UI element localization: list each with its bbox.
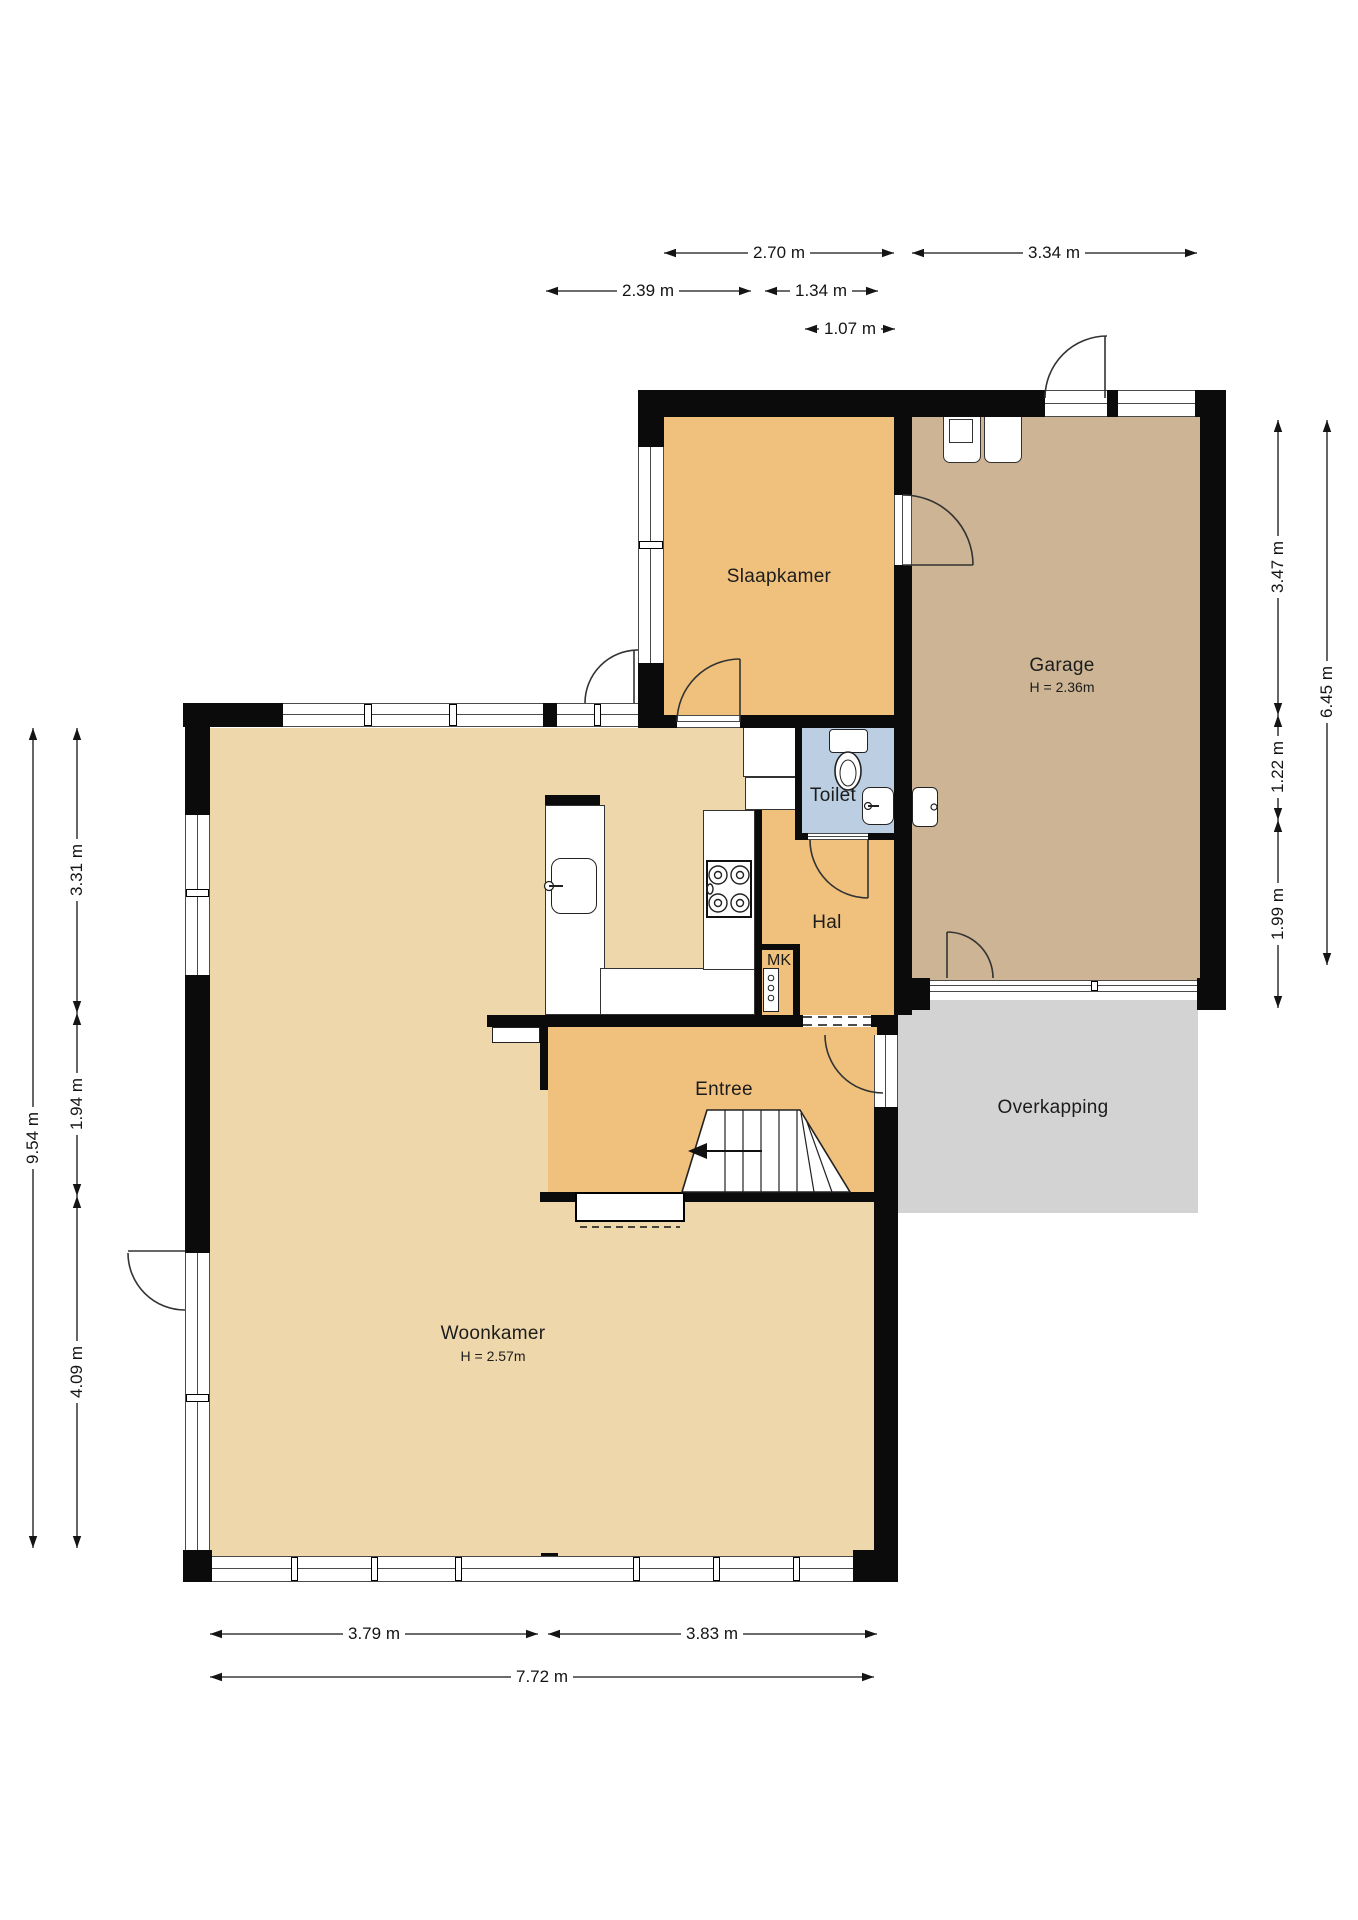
door-garage-south-threshold bbox=[947, 980, 993, 992]
dim-label-left: 9.54 m bbox=[23, 1107, 43, 1169]
wall-segment bbox=[638, 715, 677, 728]
window-mullion bbox=[1091, 981, 1098, 991]
dim-label-left: 1.94 m bbox=[67, 1073, 87, 1135]
window-slaapkamer-west bbox=[638, 447, 664, 663]
wall-segment bbox=[760, 1015, 803, 1027]
dim-label-top: 3.34 m bbox=[1023, 243, 1085, 263]
wall-segment bbox=[183, 1550, 212, 1582]
window-mullion bbox=[364, 704, 372, 726]
window-garage-north bbox=[1118, 390, 1195, 417]
hal-entree-opening bbox=[803, 1015, 871, 1027]
window-mullion bbox=[371, 1557, 378, 1581]
wall-segment bbox=[638, 390, 664, 447]
window-west-lower bbox=[185, 1318, 210, 1550]
wall-segment bbox=[894, 978, 930, 1010]
dim-label-bottom: 3.83 m bbox=[681, 1624, 743, 1644]
dim-label-top: 1.07 m bbox=[819, 319, 881, 339]
slaapkamer-garage-door-threshold bbox=[894, 495, 912, 565]
kitchen-cabinet-lower bbox=[745, 777, 797, 810]
dim-label-top: 2.70 m bbox=[748, 243, 810, 263]
woonkamer-radiator bbox=[492, 1027, 540, 1043]
window-south-band bbox=[212, 1556, 853, 1582]
wall-segment bbox=[1197, 978, 1226, 1010]
wall-segment bbox=[185, 975, 210, 1253]
room-label-entree: Entree bbox=[695, 1079, 753, 1101]
door-garage-north-threshold bbox=[1045, 390, 1107, 417]
wall-segment bbox=[557, 1015, 760, 1027]
kitchen-cabinet-upper bbox=[743, 727, 797, 777]
window-mullion bbox=[455, 1557, 462, 1581]
entree-radiator-niche bbox=[575, 1192, 685, 1222]
dim-label-bottom: 3.79 m bbox=[343, 1624, 405, 1644]
room-label-slaapkamer: Slaapkamer bbox=[727, 566, 831, 588]
wall-segment bbox=[853, 1550, 898, 1582]
wall-segment bbox=[894, 390, 912, 495]
room-height-woonkamer: H = 2.57m bbox=[461, 1348, 526, 1364]
window-mullion bbox=[186, 1394, 209, 1402]
room-label-hal: Hal bbox=[812, 912, 841, 934]
dim-label-bottom: 7.72 m bbox=[511, 1667, 573, 1687]
garage-floor bbox=[912, 417, 1200, 980]
dim-label-top: 1.34 m bbox=[790, 281, 852, 301]
window-north-left bbox=[283, 703, 543, 727]
toilet-door-threshold bbox=[808, 833, 868, 840]
room-label-toilet: Toilet bbox=[810, 785, 856, 807]
room-label-overkapping: Overkapping bbox=[997, 1097, 1108, 1119]
dim-label-right: 1.22 m bbox=[1268, 736, 1288, 798]
wall-segment bbox=[1200, 390, 1226, 998]
garage-dryer bbox=[984, 411, 1022, 463]
wall-segment bbox=[894, 565, 912, 1015]
dim-label-right: 3.47 m bbox=[1268, 536, 1288, 598]
wall-segment bbox=[795, 728, 802, 840]
wall-segment bbox=[795, 833, 808, 840]
dim-label-right: 1.99 m bbox=[1268, 883, 1288, 945]
wall-segment bbox=[540, 1025, 548, 1090]
dim-label-right: 6.45 m bbox=[1317, 661, 1337, 723]
wall-segment bbox=[755, 810, 762, 1015]
wall-segment bbox=[543, 703, 557, 727]
wall-segment bbox=[638, 390, 1045, 417]
door-west-threshold bbox=[185, 1253, 210, 1318]
wall-segment bbox=[185, 703, 210, 815]
window-mullion bbox=[793, 1557, 800, 1581]
dim-label-left: 3.31 m bbox=[67, 839, 87, 901]
door-arc-garage-north bbox=[1045, 336, 1107, 398]
wall-segment bbox=[683, 1192, 898, 1202]
room-label-garage: Garage bbox=[1029, 655, 1094, 677]
window-mullion bbox=[713, 1557, 720, 1581]
dim-label-left: 4.09 m bbox=[67, 1341, 87, 1403]
room-label-woonkamer: Woonkamer bbox=[441, 1323, 546, 1345]
wall-segment bbox=[545, 795, 600, 805]
wall-segment bbox=[1107, 390, 1118, 417]
wall-segment bbox=[871, 1015, 898, 1027]
wall-segment bbox=[740, 715, 894, 728]
slaapkamer-door-threshold bbox=[677, 715, 740, 728]
wall-segment bbox=[540, 1192, 577, 1202]
front-door-threshold bbox=[874, 1035, 898, 1107]
wall-segment bbox=[874, 1107, 898, 1553]
door-arc-west-exterior bbox=[128, 1253, 185, 1310]
floor-plan: Slaapkamer Garage H = 2.36m Toilet Hal M… bbox=[0, 0, 1358, 1920]
dim-label-top: 2.39 m bbox=[617, 281, 679, 301]
kitchen-counter-south bbox=[600, 968, 755, 1015]
window-mullion bbox=[594, 704, 601, 726]
toilet-washbasin bbox=[862, 787, 894, 825]
entree-floor bbox=[548, 1027, 877, 1192]
window-mullion bbox=[291, 1557, 298, 1581]
meter-cabinet-unit bbox=[763, 968, 779, 1012]
garage-sink bbox=[912, 787, 938, 827]
room-label-meterkast: MK bbox=[767, 952, 791, 970]
window-mullion bbox=[449, 704, 457, 726]
window-mullion bbox=[639, 541, 663, 549]
door-arc-north-exterior bbox=[585, 650, 638, 703]
garage-washer-drum bbox=[949, 419, 973, 443]
wall-segment bbox=[868, 833, 894, 840]
room-height-garage: H = 2.36m bbox=[1030, 679, 1095, 695]
wall-segment bbox=[793, 950, 800, 1015]
kitchen-sink bbox=[551, 858, 597, 914]
kitchen-hob bbox=[706, 860, 752, 918]
toilet-cistern bbox=[829, 729, 868, 753]
window-mullion bbox=[186, 889, 209, 897]
window-mullion bbox=[633, 1557, 640, 1581]
